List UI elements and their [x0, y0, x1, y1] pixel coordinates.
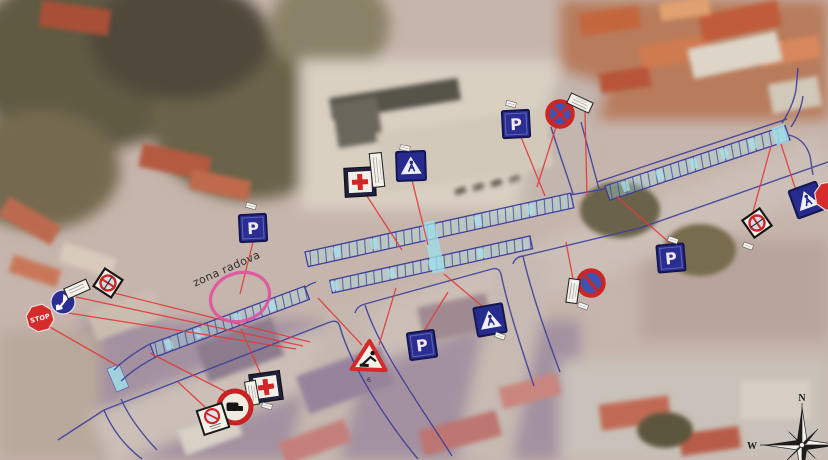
- roadworks-pole-number: 6: [367, 376, 371, 384]
- compass-north-label: N: [798, 393, 806, 404]
- parking-sign: P: [239, 214, 267, 242]
- compass-west-label: W: [747, 441, 757, 452]
- parking-sign: P: [502, 110, 530, 138]
- no-stopping-sign: [547, 101, 573, 127]
- svg-text:P: P: [510, 115, 523, 135]
- signalization-plan-map: zona radova STOP P P: [0, 0, 828, 460]
- parking-sign: P: [407, 330, 437, 360]
- svg-text:P: P: [247, 219, 260, 239]
- pedestrian-crossing-sign: [396, 151, 426, 181]
- pedestrian-crossing-sign: [473, 303, 507, 337]
- no-parking-sign: [577, 269, 604, 296]
- svg-text:P: P: [664, 248, 678, 268]
- parking-sign: P: [656, 243, 685, 272]
